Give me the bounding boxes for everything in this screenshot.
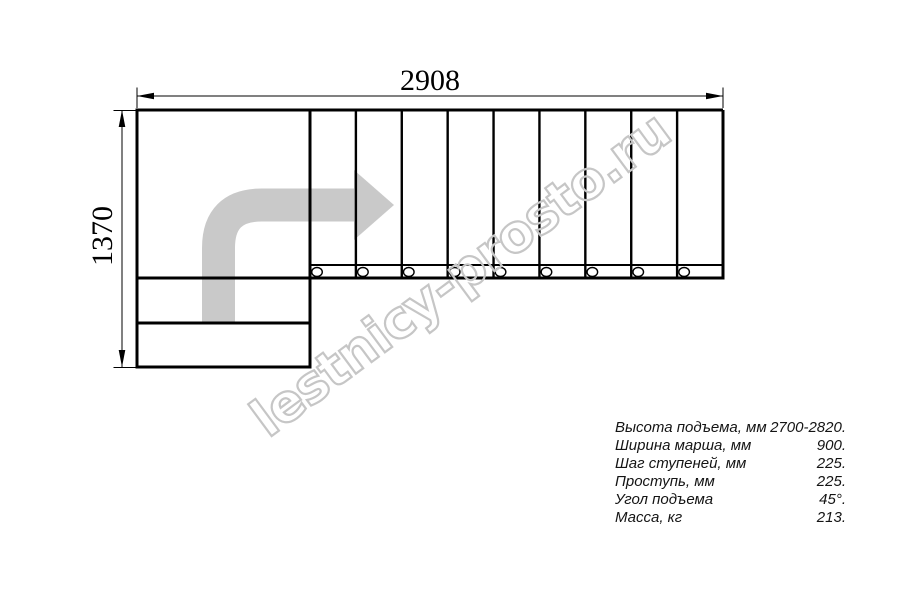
spec-value: 2700-2820.: [770, 419, 846, 437]
direction-arrow: [219, 170, 395, 324]
spec-row-tread: Проступь, мм 225.: [615, 473, 846, 491]
top-dimension-label: 2908: [400, 64, 460, 97]
spec-value: 225.: [817, 473, 846, 491]
spec-label: Ширина марша, мм: [615, 437, 751, 455]
dim-arrow-left-icon: [137, 93, 154, 99]
spec-row-step-pitch: Шаг ступеней, мм 225.: [615, 455, 846, 473]
mount-hole: [312, 268, 323, 277]
spec-label: Угол подъема: [615, 491, 713, 509]
spec-row-flight-width: Ширина марша, мм 900.: [615, 437, 846, 455]
mount-hole: [358, 268, 369, 277]
mount-hole: [449, 268, 460, 277]
mount-hole: [587, 268, 598, 277]
spec-row-rise-height: Высота подъема, мм 2700-2820.: [615, 419, 846, 437]
spec-value: 45°.: [819, 491, 846, 509]
mount-hole: [541, 268, 552, 277]
dim-arrow-down-icon: [119, 350, 126, 367]
specs-table: Высота подъема, мм 2700-2820. Ширина мар…: [615, 419, 846, 526]
left-dimension-line: 1370: [86, 110, 137, 368]
dim-arrow-up-icon: [119, 110, 126, 127]
mount-hole: [495, 268, 506, 277]
mount-hole: [679, 268, 690, 277]
spec-value: 225.: [817, 455, 846, 473]
spec-row-rise-angle: Угол подъема 45°.: [615, 491, 846, 509]
dim-arrow-right-icon: [706, 93, 723, 99]
mount-hole: [403, 268, 414, 277]
top-dimension-line: 2908: [137, 64, 723, 108]
tread-divider-lines: [356, 110, 677, 278]
left-dimension-label: 1370: [86, 206, 119, 266]
mount-hole-markers: [312, 268, 690, 277]
spec-value: 900.: [817, 437, 846, 455]
direction-arrow-head: [354, 170, 394, 240]
spec-value: 213.: [817, 509, 846, 527]
spec-label: Проступь, мм: [615, 473, 715, 491]
mount-hole: [633, 268, 644, 277]
stair-plan-canvas: 2908 1370 Высота подъема, мм 2700-2820. …: [0, 0, 900, 600]
spec-label: Масса, кг: [615, 509, 682, 527]
spec-label: Шаг ступеней, мм: [615, 455, 746, 473]
spec-label: Высота подъема, мм: [615, 419, 767, 437]
spec-row-mass: Масса, кг 213.: [615, 509, 846, 527]
